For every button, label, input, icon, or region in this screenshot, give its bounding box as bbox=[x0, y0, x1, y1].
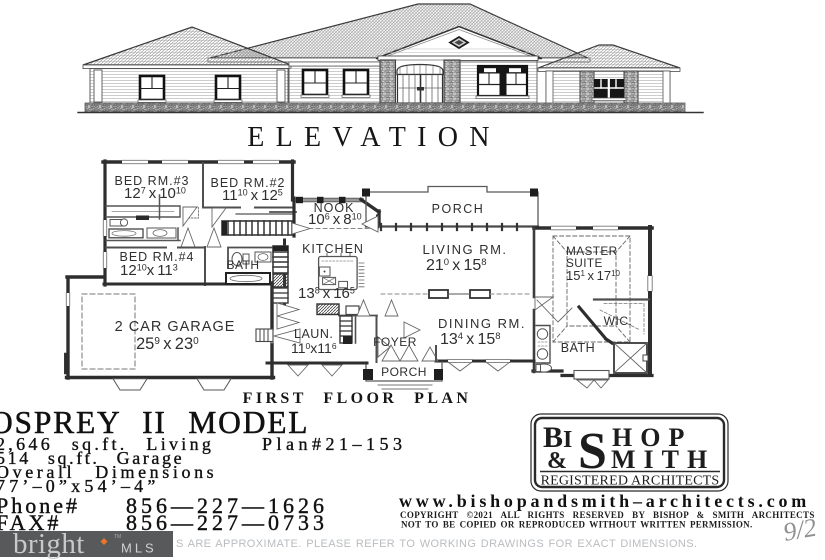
svg-text:110x116: 110x116 bbox=[291, 340, 337, 356]
svg-text:&: & bbox=[547, 448, 567, 474]
svg-text:REGISTERED ARCHITECTS: REGISTERED ARCHITECTS bbox=[541, 474, 720, 489]
svg-text:1210x 113: 1210x 113 bbox=[120, 262, 178, 279]
svg-text:MITH: MITH bbox=[611, 445, 715, 474]
svg-text:LAUN.: LAUN. bbox=[294, 327, 333, 341]
svg-text:134 x 158: 134 x 158 bbox=[440, 331, 501, 348]
svg-text:TM: TM bbox=[114, 534, 121, 540]
svg-text:BATH: BATH bbox=[561, 341, 595, 355]
svg-text:FOYER: FOYER bbox=[373, 335, 417, 349]
svg-text:PORCH: PORCH bbox=[432, 202, 485, 216]
svg-text:NOT TO BE COPIED OR REPRODUCED: NOT TO BE COPIED OR REPRODUCED WITHOUT W… bbox=[401, 520, 753, 530]
svg-text:DINING RM.: DINING RM. bbox=[438, 316, 526, 331]
svg-text:LIVING RM.: LIVING RM. bbox=[422, 242, 507, 257]
svg-text:Plan#21–153: Plan#21–153 bbox=[262, 434, 407, 454]
svg-text:MLS: MLS bbox=[121, 541, 157, 556]
svg-text:BATH: BATH bbox=[226, 258, 259, 272]
svg-text:www.bishopandsmith–architects.: www.bishopandsmith–architects.com bbox=[399, 491, 810, 511]
svg-text:COPYRIGHT ©2021 ALL RIGHTS RES: COPYRIGHT ©2021 ALL RIGHTS RESERVED BY B… bbox=[400, 510, 815, 520]
svg-text:2 CAR GARAGE: 2 CAR GARAGE bbox=[115, 319, 236, 335]
svg-text:bright: bright bbox=[13, 528, 85, 560]
svg-text:S ARE APPROXIMATE. PLEASE REF: S ARE APPROXIMATE. PLEASE REFER TO WORKI… bbox=[176, 538, 697, 550]
svg-text:ELEVATION: ELEVATION bbox=[247, 122, 501, 153]
svg-text:259 x 230: 259 x 230 bbox=[136, 335, 199, 353]
svg-text:210 x 158: 210 x 158 bbox=[426, 257, 487, 274]
svg-text:1110 x 125: 1110 x 125 bbox=[222, 187, 283, 204]
svg-text:KITCHEN: KITCHEN bbox=[302, 242, 364, 256]
svg-text:138 x 165: 138 x 165 bbox=[298, 285, 355, 302]
svg-text:9/2: 9/2 bbox=[781, 513, 819, 547]
svg-text:PORCH: PORCH bbox=[381, 365, 427, 379]
svg-text:WIC.: WIC. bbox=[604, 314, 633, 328]
